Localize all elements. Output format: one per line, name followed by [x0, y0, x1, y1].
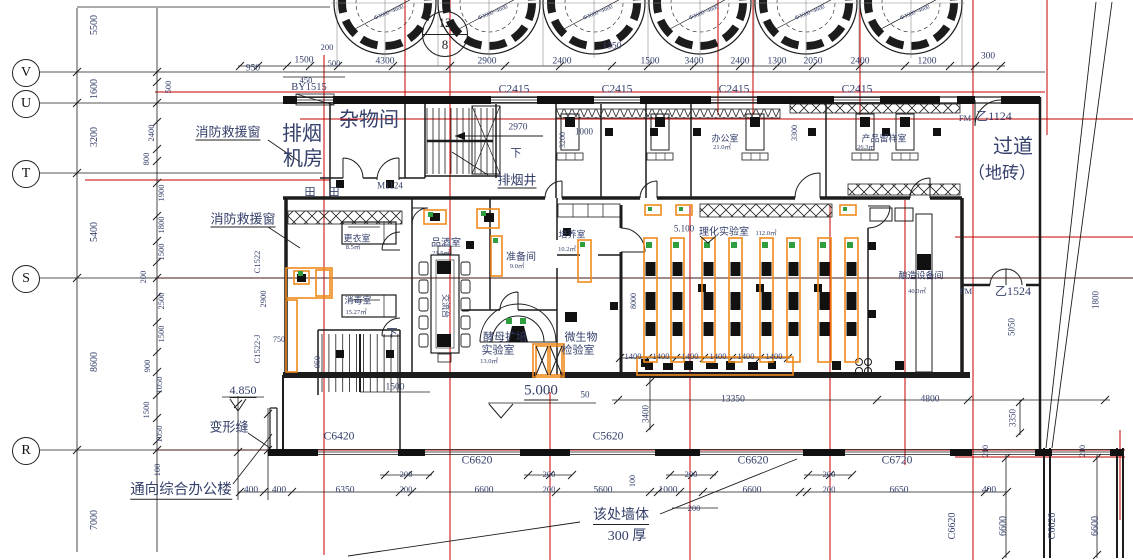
wall-pier: [957, 96, 975, 104]
wall-pier: [950, 449, 972, 456]
column: [336, 350, 344, 358]
chair: [419, 316, 428, 329]
window-strip: [594, 98, 640, 103]
detail-number: 12: [439, 15, 452, 31]
column: [808, 128, 816, 136]
plan-linework: [0, 0, 1133, 560]
wall-pier: [655, 449, 700, 456]
column: [650, 128, 658, 136]
column: [605, 128, 613, 136]
wall-pier: [333, 96, 491, 104]
chair: [461, 280, 470, 293]
column: [336, 180, 344, 188]
leader-lines: [222, 2, 1112, 556]
window-strip: [834, 98, 880, 103]
stairs: [322, 108, 493, 392]
wall-pier: [398, 449, 425, 456]
axis-bubble-U: U: [12, 90, 40, 118]
axis-grid-red: [85, 0, 1133, 560]
wall-pier: [268, 449, 318, 456]
axis-letter: R: [21, 443, 30, 459]
wall-pier: [640, 96, 711, 104]
chair: [461, 262, 470, 275]
desk: [742, 114, 768, 160]
axis-bubble-S: S: [12, 265, 40, 293]
column: [693, 128, 701, 136]
axis-letter: T: [22, 166, 31, 182]
wall-pier: [1035, 449, 1052, 456]
desk: [852, 114, 878, 160]
wall-pier: [520, 449, 570, 456]
chair: [461, 334, 470, 347]
column: [882, 128, 890, 136]
column: [933, 128, 941, 136]
wall-pier: [537, 96, 594, 104]
wall-pier: [880, 96, 940, 104]
column: [868, 242, 876, 250]
column: [610, 302, 618, 310]
floor-plan-drawing: 5500160032005400860070005002400800190018…: [0, 0, 1133, 560]
chair: [419, 262, 428, 275]
chair: [419, 280, 428, 293]
column: [386, 180, 394, 188]
desk: [557, 114, 583, 160]
detail-sheet: 8: [442, 37, 449, 53]
wall-pier: [803, 449, 845, 456]
axis-bubble-T: T: [12, 160, 40, 188]
walls: [268, 96, 1123, 558]
column: [466, 241, 474, 249]
lab-bench-pair: [644, 238, 684, 362]
axis-bubble-V: V: [12, 59, 40, 87]
window-strip: [297, 98, 333, 103]
column: [386, 350, 394, 358]
chair: [419, 334, 428, 347]
desk: [892, 114, 918, 160]
axis-letter: U: [21, 96, 31, 112]
axis-grid-black: [38, 7, 1133, 559]
wall-pier: [1110, 449, 1123, 456]
column: [563, 228, 571, 236]
tank: [752, 0, 860, 58]
wall-pier: [1001, 96, 1040, 104]
tank: [646, 0, 754, 58]
chair: [461, 316, 470, 329]
chair: [461, 298, 470, 311]
axis-letter: S: [22, 271, 30, 287]
axis-bubble-R: R: [12, 437, 40, 465]
tank: [857, 0, 965, 58]
lab-bench-pair: [702, 238, 742, 362]
lab-bench-pair: [760, 238, 800, 362]
lab-bench-pair: [818, 238, 858, 362]
column: [868, 310, 876, 318]
wall-pier: [283, 96, 297, 104]
detail-callout-bubble: 128: [422, 11, 468, 57]
chair: [419, 298, 428, 311]
highlighted-equipment: [286, 205, 858, 377]
axis-letter: V: [21, 65, 31, 81]
tank: [540, 0, 648, 58]
desk: [647, 114, 673, 160]
wall-pier: [757, 96, 834, 104]
window-strip: [491, 98, 537, 103]
